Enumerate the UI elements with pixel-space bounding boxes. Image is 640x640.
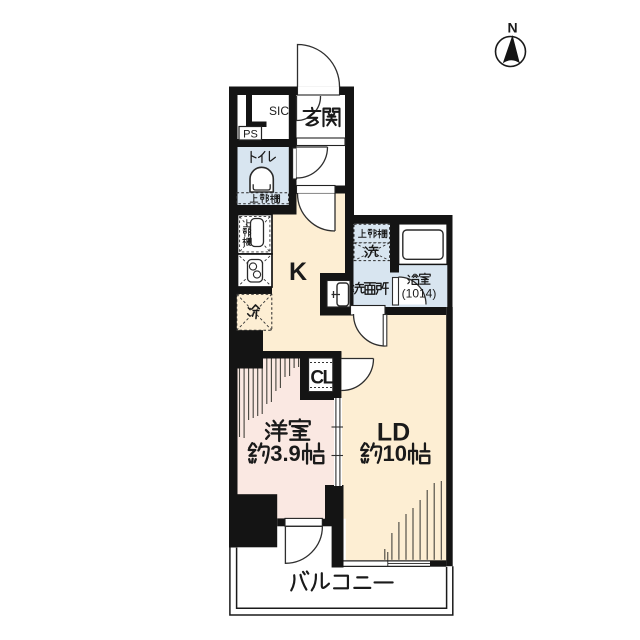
svg-text:K: K	[289, 258, 307, 286]
svg-text:3.9: 3.9	[270, 441, 301, 466]
svg-text:SIC: SIC	[269, 104, 289, 118]
svg-text:CL: CL	[310, 368, 334, 389]
svg-text:N: N	[507, 20, 517, 36]
svg-text:LD: LD	[377, 418, 410, 446]
svg-text:(1014): (1014)	[402, 286, 437, 300]
svg-text:PS: PS	[243, 129, 258, 141]
